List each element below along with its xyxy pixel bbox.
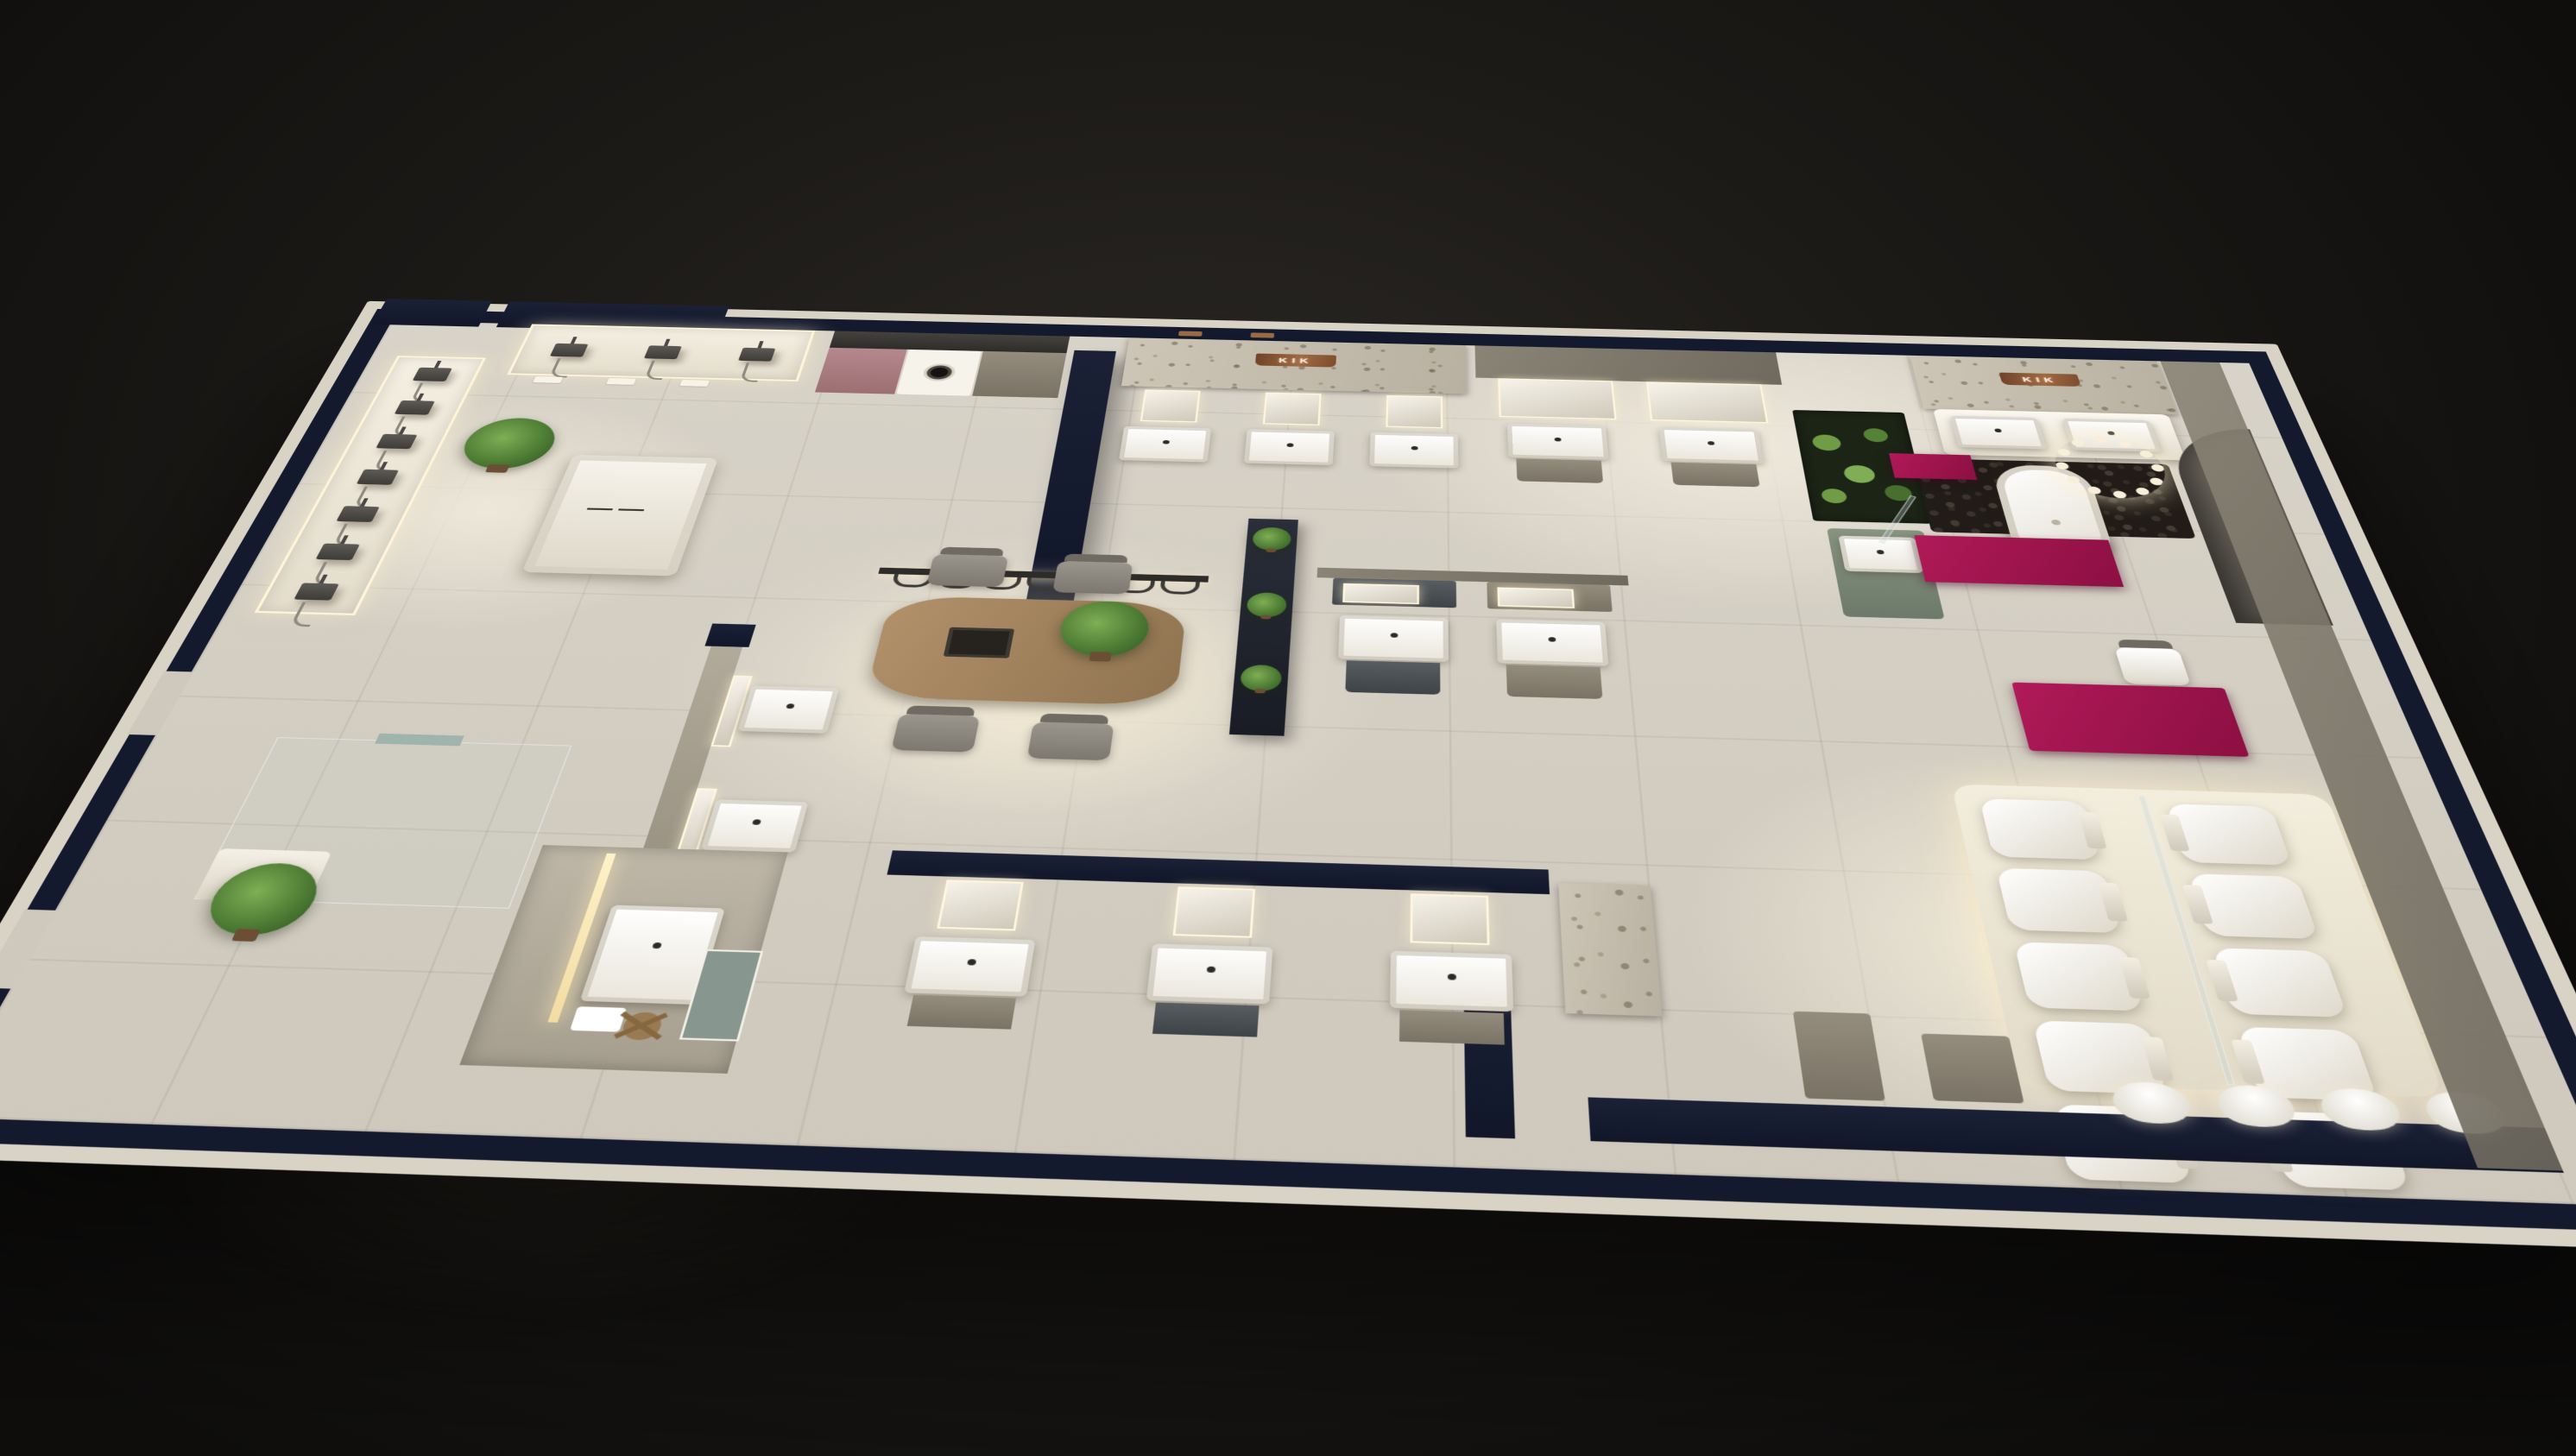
smart-toilet [2165, 804, 2292, 866]
dining-chair [926, 554, 1008, 587]
vanity-cabinet [907, 995, 1016, 1030]
shower-head [294, 583, 339, 601]
wall-hung-basin [2314, 1087, 2405, 1131]
brand-sign-2-text: KIK [2021, 375, 2058, 384]
led-mirror-cabinet [1646, 382, 1768, 424]
vanity-mirror [1140, 390, 1201, 423]
wall-hung-basin [2108, 1081, 2195, 1125]
shower-head [413, 368, 452, 381]
smart-toilet [2014, 942, 2144, 1012]
brand-sign-1: KIK [1255, 354, 1336, 368]
vanity-bay [1104, 387, 1225, 493]
vanity-basin [1369, 432, 1458, 469]
vanity-bay [1344, 889, 1558, 1064]
vanity-bay [1231, 389, 1345, 495]
pendant-hook [1159, 582, 1200, 596]
vanity-bay [1359, 392, 1468, 499]
spec-card [533, 376, 563, 383]
pink-cabinet [815, 348, 907, 394]
led-vanity-unit [1493, 379, 1626, 495]
reception-counter [521, 455, 718, 577]
vanity-bay-row-center [1104, 387, 1468, 499]
shower-head [738, 348, 775, 362]
vanity-basin [737, 686, 839, 734]
spec-card [679, 380, 710, 387]
island-vanity-taupe [1481, 583, 1628, 723]
vanity-basin [1119, 426, 1211, 463]
spec-card [606, 378, 636, 385]
towel [570, 1007, 627, 1033]
vanity-basin [701, 800, 809, 853]
shelf-plant [1246, 593, 1287, 618]
vanity-mirror [1386, 395, 1443, 428]
marble-feature-wall-2: KIK [1910, 356, 2177, 415]
wall-hung-basin [2211, 1085, 2300, 1129]
dining-chair [1052, 561, 1133, 595]
wood-stool [619, 1012, 665, 1042]
vanity-mirror [1410, 894, 1489, 946]
laundry-corner [815, 331, 1070, 399]
vanity-mirror [1263, 393, 1322, 425]
smart-toilet [2188, 874, 2319, 940]
shower-display-wall-north [507, 325, 815, 381]
brand-sign-1-text: KIK [1279, 356, 1313, 365]
shower-head [376, 434, 417, 449]
vanity-cabinet [1516, 459, 1603, 484]
vanity-bay [849, 875, 1084, 1049]
vanity-basin [1390, 951, 1513, 1012]
shower-display-wall-west [255, 356, 486, 616]
serving-tray [944, 627, 1014, 659]
door-opening [127, 671, 193, 735]
vanity-cabinet [1152, 1003, 1260, 1037]
vanity-mirror [1342, 583, 1419, 604]
shower-head [357, 470, 399, 485]
smart-toilet [1979, 799, 2101, 860]
vanity-mirror [1173, 887, 1256, 938]
shelf-plant [1252, 527, 1291, 552]
showroom-building: KIK [0, 301, 2576, 1251]
magenta-reception-desk [2011, 683, 2249, 757]
vanity-basin [1146, 944, 1273, 1005]
vanity-bay [1095, 882, 1316, 1056]
pendant-hook [891, 575, 932, 589]
vanity-cabinet [1345, 661, 1440, 696]
shower-head [395, 400, 435, 415]
door-opening [0, 910, 58, 989]
led-vanity-unit [1640, 381, 1783, 498]
taupe-cabinet [972, 351, 1066, 398]
vanity-basin [1244, 430, 1335, 466]
reception-chair [2114, 647, 2191, 686]
vanity-bay-row-south [849, 875, 1558, 1064]
teal-panel [375, 734, 464, 747]
marble-pillar [1558, 884, 1662, 1018]
partition-cap [704, 624, 755, 647]
magenta-platform [1914, 536, 2124, 588]
vanity-cabinet [1671, 463, 1760, 488]
potted-palm [453, 418, 564, 470]
marble-feature-wall-1: KIK [1121, 338, 1467, 394]
showroom-floor: KIK [0, 309, 2576, 1232]
vanity-basin [1950, 416, 2048, 450]
vanity-basin [1507, 424, 1609, 460]
roof-slab [372, 299, 492, 327]
led-mirror-cabinet [1498, 379, 1616, 420]
brand-sign-2: KIK [1998, 373, 2080, 387]
pedestal-unit [1793, 1012, 1885, 1101]
shower-head [315, 544, 359, 560]
pedestal-unit [1921, 1034, 2024, 1104]
vanity-basin [1659, 427, 1764, 463]
dining-chair [1027, 722, 1114, 761]
island-vanity-dark [1321, 578, 1465, 718]
copper-ceiling-light [1178, 331, 1203, 337]
showroom-aerial-scene: KIK [0, 0, 2576, 1456]
shower-head [550, 344, 589, 357]
counter-engraving [587, 508, 645, 512]
vanity-basin [904, 936, 1035, 997]
vanity-mirror [937, 880, 1024, 931]
shelf-plant [1240, 665, 1282, 692]
dining-chair [891, 715, 980, 753]
copper-ceiling-light [1250, 333, 1274, 338]
vanity-cabinet [1506, 665, 1603, 700]
vanity-mirror [1497, 588, 1575, 608]
washing-machine [896, 350, 981, 396]
shower-head [644, 346, 682, 360]
vanity-basin [1496, 620, 1608, 666]
smart-toilet [2212, 949, 2348, 1018]
shower-head [337, 506, 380, 522]
magenta-wall-panel [1889, 454, 1977, 481]
vanity-basin [1338, 615, 1449, 662]
vanity-cabinet [1399, 1011, 1505, 1045]
smart-toilet [1996, 868, 2122, 933]
